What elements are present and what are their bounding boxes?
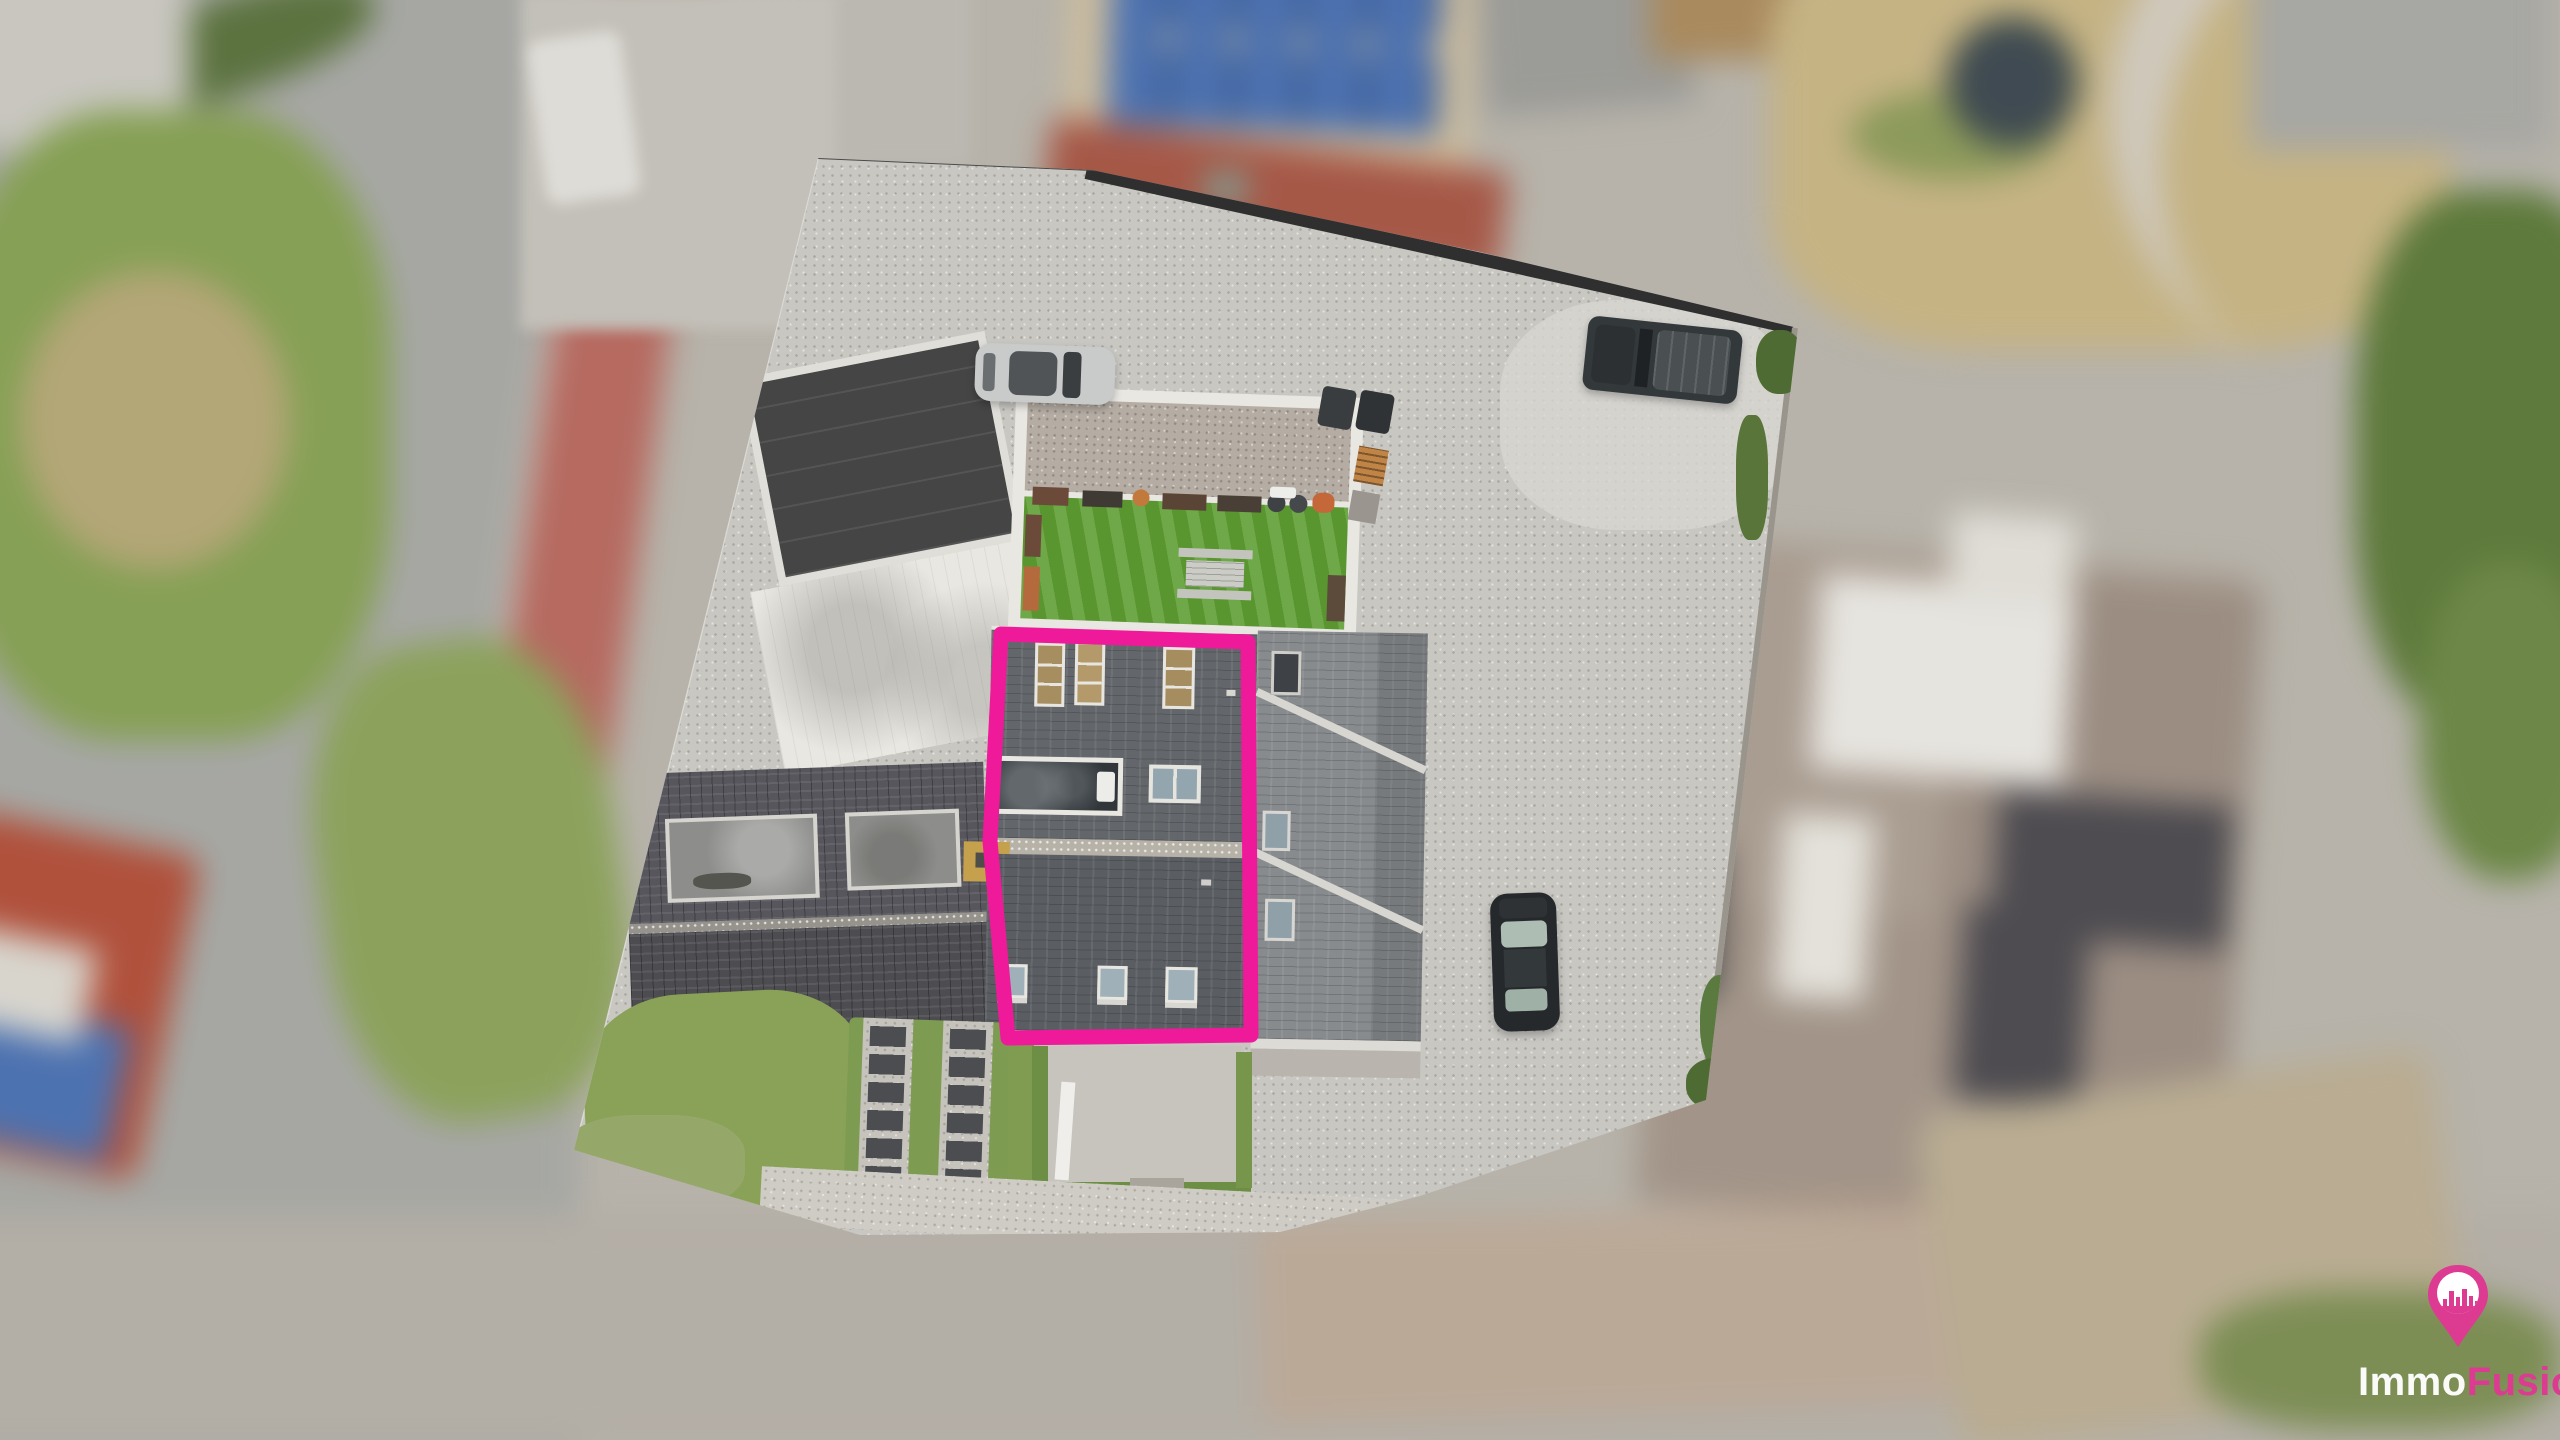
sedan-windshield [1501, 920, 1548, 948]
planter-right [1326, 575, 1346, 622]
ac-unit [1097, 772, 1116, 802]
waste-bin-1 [1317, 385, 1357, 430]
dormer-window-3 [1165, 967, 1198, 1004]
roof-vent-2 [1201, 879, 1211, 885]
picnic-bench-top [1179, 548, 1253, 560]
roof-window-3 [1162, 647, 1195, 710]
roof-window-small [1149, 764, 1202, 803]
sedan-hood [1499, 897, 1548, 919]
right-wing-window-3 [1264, 899, 1295, 942]
brand-name-fusion: Fusion [2467, 1360, 2560, 1404]
planter-2 [1082, 490, 1123, 507]
suv-hood [1590, 324, 1636, 386]
hedge-patio-left [1032, 1046, 1048, 1192]
left-building-dormer-2 [845, 809, 962, 891]
planter-left-1 [1024, 514, 1041, 557]
sedan-roof [1504, 948, 1547, 987]
subject-building [984, 626, 1257, 1043]
right-wing-building [1250, 631, 1428, 1079]
right-wing-shade [1371, 633, 1428, 1042]
dormer-window-1 [997, 964, 1028, 999]
white-bench [1270, 487, 1296, 499]
dormer-window-2 [1097, 966, 1128, 1001]
hedge-east-2 [1736, 415, 1768, 540]
map-pin-icon [2423, 1262, 2493, 1354]
driveway-top [836, 0, 971, 165]
aerial-photo: ImmoFusion [0, 0, 2560, 1440]
parked-car-silver [974, 343, 1116, 406]
sedan-rear-window [1505, 988, 1548, 1011]
back-patio [1046, 1046, 1242, 1186]
planter-left-2 [1023, 566, 1041, 611]
car-glass-roof [1008, 351, 1058, 397]
planter-4 [1217, 495, 1262, 513]
picnic-tabletop [1185, 560, 1244, 588]
watermark-logo: ImmoFusion [2358, 1262, 2558, 1412]
brand-name-immo: Immo [2358, 1360, 2467, 1404]
planter-1 [1032, 487, 1069, 506]
roof-window-2 [1074, 641, 1105, 706]
waste-bin-2 [1355, 389, 1395, 434]
right-wing-window-1 [1271, 651, 1302, 696]
flower-pot-orange-2 [1312, 492, 1335, 513]
brand-name: ImmoFusion [2358, 1360, 2558, 1405]
subject-lower-slope [985, 854, 1254, 1035]
roof-window-1 [1034, 642, 1065, 707]
courtyard [1008, 386, 1364, 642]
parked-sedan-dark [1490, 892, 1561, 1032]
suv-roof [1652, 329, 1732, 396]
roof-vent-1 [1226, 690, 1235, 696]
hedge-patio-right [1236, 1052, 1252, 1188]
picnic-table [1177, 544, 1253, 603]
car-rear-window [982, 353, 995, 391]
dormer-tar-patch [693, 872, 752, 890]
right-wing-window-2 [1262, 811, 1291, 851]
right-wing-wall [1250, 1048, 1420, 1078]
pallet-grey [1348, 490, 1381, 524]
picnic-bench-bottom [1177, 589, 1251, 601]
planter-3 [1162, 493, 1207, 511]
pallet-stack [1353, 446, 1389, 487]
suv-windshield [1634, 328, 1653, 387]
courtyard-gravel-roof [1025, 398, 1352, 501]
left-building-dormer-1 [665, 814, 820, 903]
car-windshield [1062, 352, 1082, 399]
